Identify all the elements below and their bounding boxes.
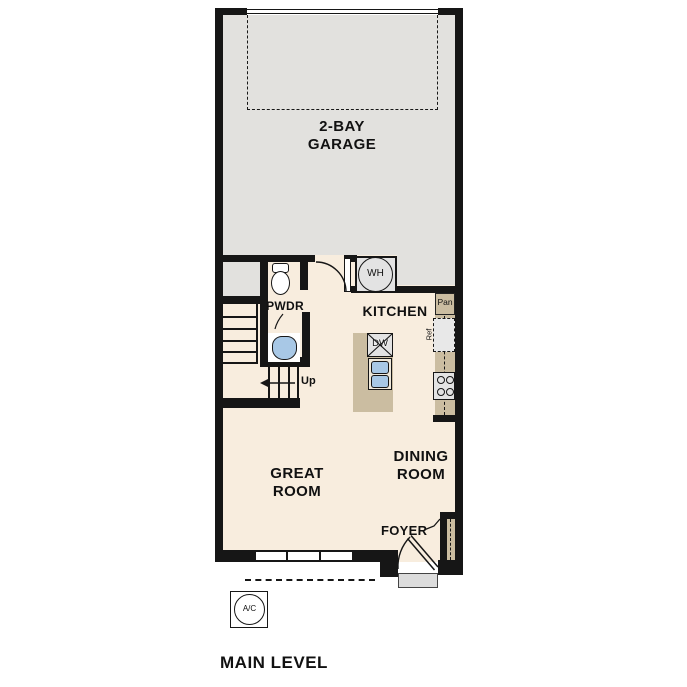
stair-tread: [223, 362, 257, 364]
range-burner: [437, 388, 445, 396]
wall-stairs-bottom: [215, 398, 300, 408]
stair-tread: [288, 367, 290, 398]
stair-upper-run-edge: [256, 304, 258, 364]
range-burner: [446, 388, 454, 396]
floor-plan: Up PWDR WH Pan Ref DW A/C 2-BAY GARAGE K…: [0, 0, 687, 687]
wall-left-exterior: [215, 8, 223, 562]
foyer-closet: [447, 519, 455, 560]
wall-stairwell-top: [223, 296, 260, 304]
dining-room-label: DINING ROOM: [361, 448, 481, 484]
wall-kitchen-counter-bottom: [433, 415, 455, 422]
garage-label-line2: GARAGE: [282, 136, 402, 154]
powder-sink: [272, 336, 297, 360]
stair-tread: [223, 351, 257, 353]
wall-bottom-right-corner: [438, 560, 455, 575]
refrigerator: [433, 318, 455, 352]
stair-tread: [223, 316, 257, 318]
closet-rod-dashed-line: [450, 519, 451, 560]
dishwasher-label: DW: [367, 338, 393, 349]
entry-porch: [398, 573, 438, 588]
water-heater-label: WH: [358, 268, 393, 279]
stairs-up-label: Up: [301, 375, 316, 387]
garage-entry-door-leaf: [344, 258, 351, 292]
refrigerator-label: Ref: [425, 323, 434, 347]
garage-door: [247, 9, 438, 14]
kitchen-label: KITCHEN: [345, 302, 445, 320]
ac-unit-label: A/C: [234, 604, 265, 613]
island-sink-basin: [371, 375, 389, 388]
stair-tread: [223, 328, 257, 330]
range-burner: [437, 376, 445, 384]
wall-right-exterior: [455, 8, 463, 575]
wall-entry-left-block: [380, 555, 398, 577]
window-mullion: [286, 552, 288, 560]
range-burner: [446, 376, 454, 384]
garage-label: 2-BAY GARAGE: [282, 118, 402, 154]
garage-label-line1: 2-BAY: [282, 118, 402, 136]
stair-tread: [223, 340, 257, 342]
wall-powder-right-lower: [302, 312, 310, 362]
stair-tread: [278, 367, 280, 398]
great-room-window: [255, 551, 353, 561]
garage-floor-right: [397, 255, 455, 285]
great-room-label-line1: GREAT: [237, 465, 357, 483]
great-room-label-line2: ROOM: [237, 483, 357, 501]
window-mullion: [319, 552, 321, 560]
stair-lower-run-edge: [297, 367, 299, 398]
dining-room-label-line2: ROOM: [361, 466, 481, 484]
wall-powder-right-upper: [300, 262, 308, 290]
patio-outline: [245, 562, 375, 581]
wall-top-left-corner: [215, 8, 247, 15]
island-sink-basin: [371, 361, 389, 374]
stair-tread: [268, 367, 270, 398]
toilet-bowl: [271, 271, 290, 295]
plan-title: MAIN LEVEL: [220, 653, 328, 673]
garage-bay-dashed-area: [247, 15, 438, 110]
powder-room-label: PWDR: [262, 299, 308, 313]
great-room-label: GREAT ROOM: [237, 465, 357, 501]
dining-room-label-line1: DINING: [361, 448, 481, 466]
foyer-label: FOYER: [381, 523, 425, 538]
wall-closet-left: [440, 512, 447, 560]
wall-garage-kitchen-left: [223, 255, 315, 262]
